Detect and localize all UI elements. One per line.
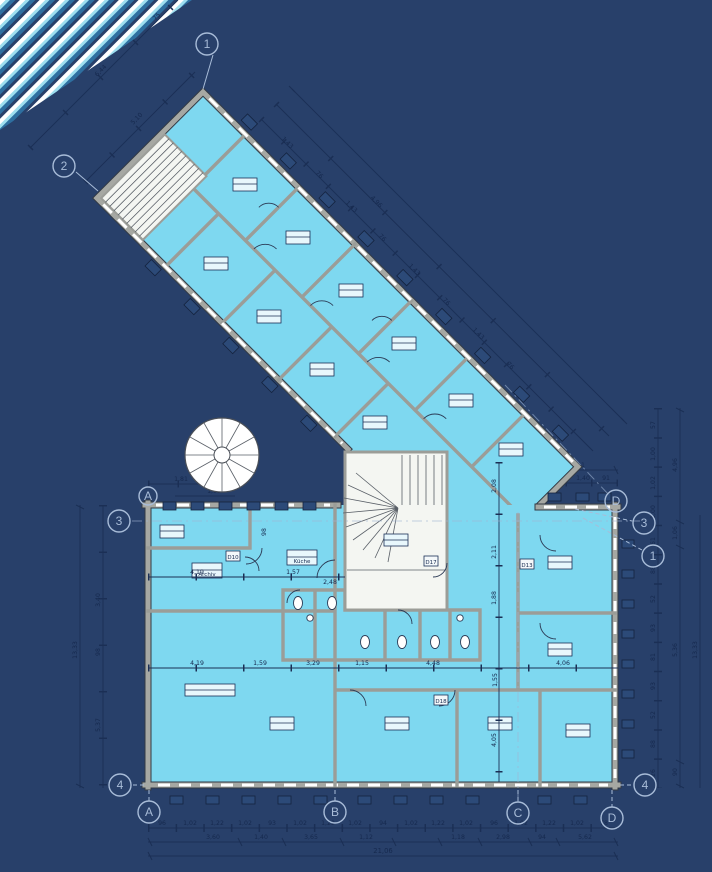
toilet-icon [431,636,440,649]
dim: 1,22 [210,820,224,827]
grid-marker-label: 1 [204,37,211,51]
toilet-icon [461,636,470,649]
room-tag [548,643,572,656]
dim: 96 [490,820,498,827]
window-tag [574,796,587,804]
grid-marker-label: D [612,494,621,508]
dim: 61 [650,537,657,545]
grid-marker-label: C [514,806,523,820]
dim: 94 [538,834,546,841]
room-tag [286,231,310,244]
room-tag [270,717,294,730]
dim: 1,57 [286,569,300,576]
toilet-icon [328,597,337,610]
grid-marker-label: D [608,811,617,825]
dim: 1,81 [174,476,188,483]
dim: 98 [95,648,102,656]
room-tag [363,416,387,429]
door-tag-label: D13 [521,563,533,569]
grid-marker-label: 2 [61,159,68,173]
toilet-icon [361,636,370,649]
window-tag [622,750,634,758]
grid-marker-label: 3 [116,514,123,528]
dim-total: 13,33 [692,641,699,659]
window-tag [430,796,443,804]
window-tag [622,660,634,668]
dim: 1,02 [570,820,584,827]
dim: 3,65 [304,834,318,841]
dim: 1,02 [238,820,252,827]
dim: 90 [672,768,679,776]
room-tag [233,178,257,191]
dim: 93 [268,820,276,827]
window-tag [622,600,634,608]
dim: 1,02 [348,820,362,827]
window-tag [242,796,255,804]
dim: 4,06 [556,660,570,667]
dim: 1,02 [183,820,197,827]
window-tag [247,502,260,510]
dim: 3,40 [95,593,102,607]
room-tag [385,717,409,730]
door-tag-label: D18 [435,699,447,705]
window-tag [163,502,176,510]
window-tag [622,690,634,698]
dim: 81 [650,653,657,661]
toilet-icon [294,597,303,610]
dim: 4,48 [426,660,440,667]
sink-icon [307,615,313,621]
dim: 1,02 [404,820,418,827]
dim: 1,15 [355,660,369,667]
window-tag [576,493,589,501]
window-tag [303,502,316,510]
window-tag [548,493,561,501]
dim: 1,59 [253,660,267,667]
dim: 5,36 [672,643,679,657]
room-tag [204,257,228,270]
window-tag [278,796,291,804]
dim: 52 [650,595,657,603]
room-tag [499,443,523,456]
room-tag [257,310,281,323]
dim: 94 [379,820,387,827]
room-label-kitchen: Küche [294,559,311,565]
dim: 2,11 [491,545,498,559]
toilet-icon [398,636,407,649]
dim: 4,19 [190,660,204,667]
room-tag [392,337,416,350]
window-tag [358,796,371,804]
dim: 1,02 [459,820,473,827]
spiral-staircase [185,418,259,492]
dim: 88 [650,740,657,748]
window-tag [466,796,479,804]
dim: 1,02 [650,476,657,490]
grid-marker-label: 1 [650,549,657,563]
room-tag [160,525,184,538]
main-staircase [345,452,447,610]
grid-marker-label: A [145,805,153,819]
window-tag [275,502,288,510]
dim: 1,88 [491,591,498,605]
dim: 1,02 [293,820,307,827]
door-tag-label: D10 [227,555,239,561]
dim: 96 [158,820,166,827]
room-tag [566,724,590,737]
dim: 93 [650,624,657,632]
dim: 1,06 [672,526,679,540]
room-tag [339,284,363,297]
floor-plan-drawing: 96 1,02 1,22 1,02 93 1,02 1,22 1,02 94 1… [0,0,712,872]
window-tag [170,796,183,804]
dim: 5,37 [95,718,102,732]
dim: 1,12 [359,834,373,841]
grid-marker-label: 4 [117,778,124,792]
window-tag [622,570,634,578]
window-tag [191,502,204,510]
dim: 52 [650,711,657,719]
window-tag [622,720,634,728]
dim: 1,55 [492,673,499,687]
dim: 57 [650,421,657,429]
floor-plan-page: 96 1,02 1,22 1,02 93 1,02 1,22 1,02 94 1… [0,0,712,872]
dim-total: 13,33 [72,641,79,659]
dim: 2,48 [323,579,337,586]
dim: 3,60 [206,834,220,841]
door-tag-label: D17 [425,560,437,566]
room-tag [548,556,572,569]
window-tag [622,630,634,638]
grid-marker-label: A [144,489,152,503]
grid-marker-label: B [331,805,339,819]
dim: 91 [602,475,610,482]
dim: 1,40 [576,475,590,482]
window-tag [206,796,219,804]
sink-icon [457,615,463,621]
window-tag [394,796,407,804]
grid-marker-label: 3 [641,516,648,530]
grid-marker-label: 4 [642,778,649,792]
room-tag [310,363,334,376]
room-tag [449,394,473,407]
dim: 1,18 [451,834,465,841]
window-tag [538,796,551,804]
dim: 98 [261,528,268,536]
dim: 5,62 [578,834,592,841]
window-tag [314,796,327,804]
room-tag [488,717,512,730]
dim: 4,19 [190,569,204,576]
window-tag [622,540,634,548]
dim: 1,22 [542,820,556,827]
dim: 2,08 [491,479,498,493]
dim: 1,00 [650,447,657,461]
window-tag [219,502,232,510]
dim: 4,96 [672,458,679,472]
dim: 93 [650,682,657,690]
dim-total: 21,06 [373,847,392,855]
dim: 4,05 [491,733,498,747]
dim: 3,29 [306,660,320,667]
dim: 1,22 [431,820,445,827]
dim: 1,40 [254,834,268,841]
dim: 2,98 [496,834,510,841]
